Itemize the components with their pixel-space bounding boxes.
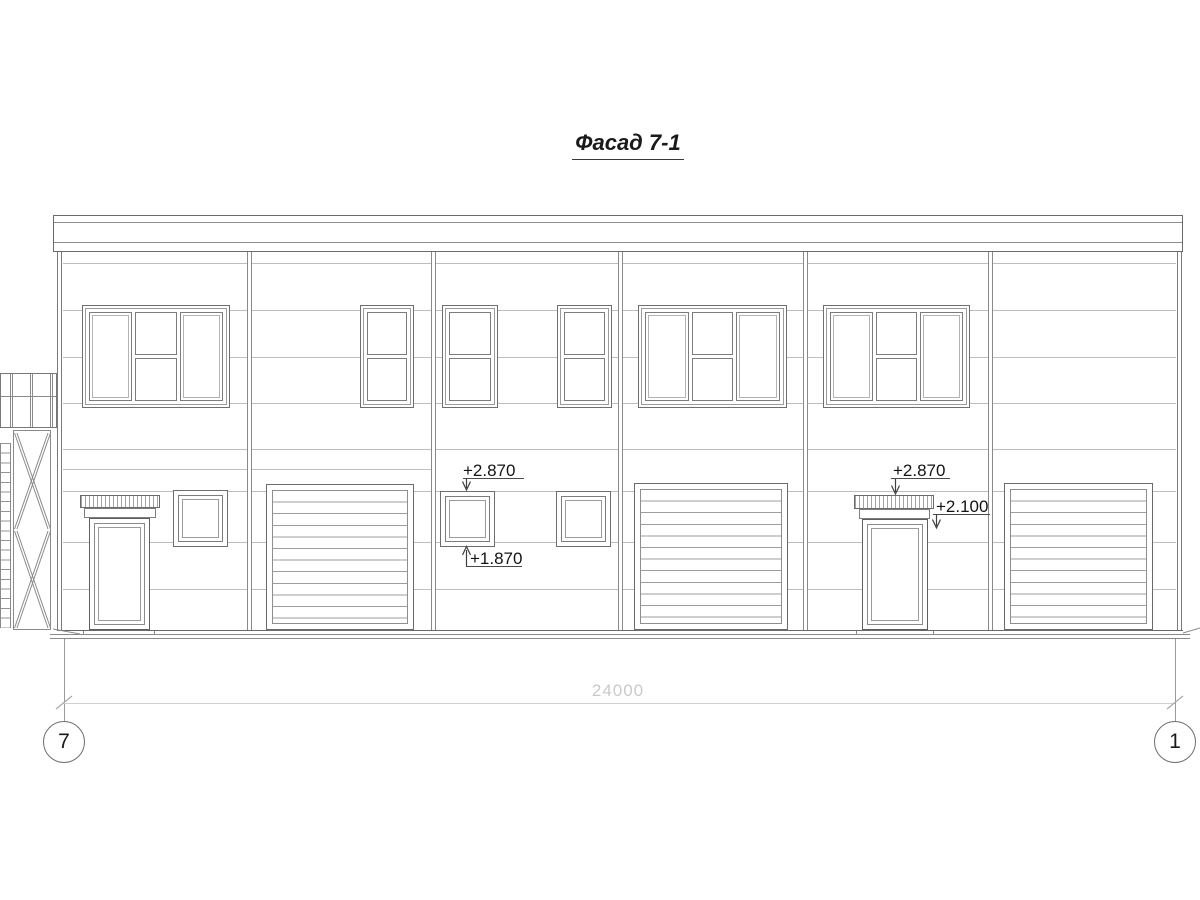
drawing-title: Фасад 7-1: [572, 130, 684, 160]
glass: [648, 315, 686, 398]
window-pane: [180, 312, 223, 401]
parapet-band: [53, 215, 1183, 252]
dimension-line: [64, 703, 1175, 704]
window-pane: [876, 358, 917, 401]
small-window-bay1: [173, 490, 228, 547]
glass: [923, 315, 960, 398]
entry-door-left: [89, 518, 150, 630]
parapet-joint: [54, 222, 1182, 223]
window-frame: [641, 308, 784, 405]
window-pane: [367, 312, 407, 355]
axis-label: 1: [1169, 730, 1181, 754]
window-pane-split: [876, 312, 917, 401]
window-pane: [830, 312, 873, 401]
window-pane: [920, 312, 963, 401]
window-pane: [692, 358, 734, 401]
plinth-band: [50, 634, 1190, 639]
pilaster: [247, 252, 252, 630]
roller-gate-bay6: [1004, 483, 1153, 630]
window-pane: [692, 312, 734, 355]
axis-label: 7: [58, 730, 70, 754]
door-canopy-right: [854, 495, 934, 509]
gate-slats: [640, 489, 782, 624]
small-window-bay3-right: [556, 491, 611, 547]
window-pane-split: [367, 312, 407, 401]
door-leaf: [98, 527, 141, 621]
wall-right-edge: [1177, 252, 1182, 630]
parapet-joint: [54, 242, 1182, 243]
window-frame: [445, 308, 495, 405]
upper-window-bay3-right: [557, 305, 612, 408]
screen-post: [50, 374, 53, 427]
glass: [182, 499, 219, 538]
dimension-label: 24000: [568, 681, 668, 701]
upper-window-bay3-left: [442, 305, 498, 408]
elevation-mark-shelf: [466, 566, 522, 567]
window-pane-split: [135, 312, 176, 401]
gate-slats: [1010, 489, 1147, 624]
upper-window-bay5: [823, 305, 970, 408]
axis-line-1: [1175, 639, 1176, 721]
window-frame: [178, 495, 223, 542]
window-pane: [135, 358, 176, 401]
window-frame: [445, 496, 490, 542]
window-frame: [561, 496, 606, 542]
window-pane-split: [449, 312, 491, 401]
window-pane: [89, 312, 132, 401]
screen-post: [30, 374, 33, 427]
facade-elevation-drawing: Фасад 7-1: [0, 0, 1200, 900]
window-frame: [363, 308, 411, 405]
screen-rail: [1, 396, 56, 397]
pilaster: [988, 252, 993, 630]
window-pane: [876, 312, 917, 355]
annex-glazed-screen: [0, 373, 57, 428]
glass: [833, 315, 870, 398]
small-window-bay3-left: [440, 491, 495, 547]
glass: [449, 500, 486, 538]
fire-ladder: [0, 443, 11, 628]
axis-bubble-7: 7: [43, 721, 85, 763]
pilaster: [803, 252, 808, 630]
door-frame: [867, 524, 923, 625]
roller-gate-bay4: [634, 483, 788, 630]
canopy-fascia-left: [84, 508, 156, 518]
glass: [92, 315, 129, 398]
gate-slats: [272, 490, 408, 624]
window-pane-split: [564, 312, 605, 401]
window-pane: [564, 312, 605, 355]
cross-brace-panel: [13, 430, 51, 630]
door-leaf: [871, 528, 919, 621]
window-pane: [449, 358, 491, 401]
pilaster: [618, 252, 623, 630]
door-canopy-left: [80, 495, 160, 508]
glass: [565, 500, 602, 538]
pilaster: [431, 252, 436, 630]
elevation-mark-shelf: [463, 478, 524, 479]
ground-tail-right: [1183, 628, 1200, 633]
elevation-mark-shelf: [933, 514, 990, 515]
canopy-fascia-right: [859, 509, 930, 519]
axis-bubble-1: 1: [1154, 721, 1196, 763]
roller-gate-bay2: [266, 484, 414, 630]
upper-window-bay1: [82, 305, 230, 408]
window-pane: [367, 358, 407, 401]
window-pane: [449, 312, 491, 355]
door-frame: [94, 523, 145, 625]
upper-window-bay4: [638, 305, 787, 408]
window-pane-split: [692, 312, 734, 401]
glass: [183, 315, 220, 398]
entry-door-right: [862, 519, 928, 630]
screen-post: [10, 374, 13, 427]
window-frame: [826, 308, 967, 405]
facade-base-line: [57, 630, 1183, 631]
window-frame: [85, 308, 227, 405]
upper-window-bay2: [360, 305, 414, 408]
window-pane: [135, 312, 176, 355]
wall-left-edge: [57, 252, 62, 630]
window-pane: [645, 312, 689, 401]
window-frame: [560, 308, 609, 405]
window-pane: [564, 358, 605, 401]
glass: [739, 315, 777, 398]
elevation-mark-shelf: [891, 478, 950, 479]
axis-line-7: [64, 639, 65, 721]
window-pane: [736, 312, 780, 401]
